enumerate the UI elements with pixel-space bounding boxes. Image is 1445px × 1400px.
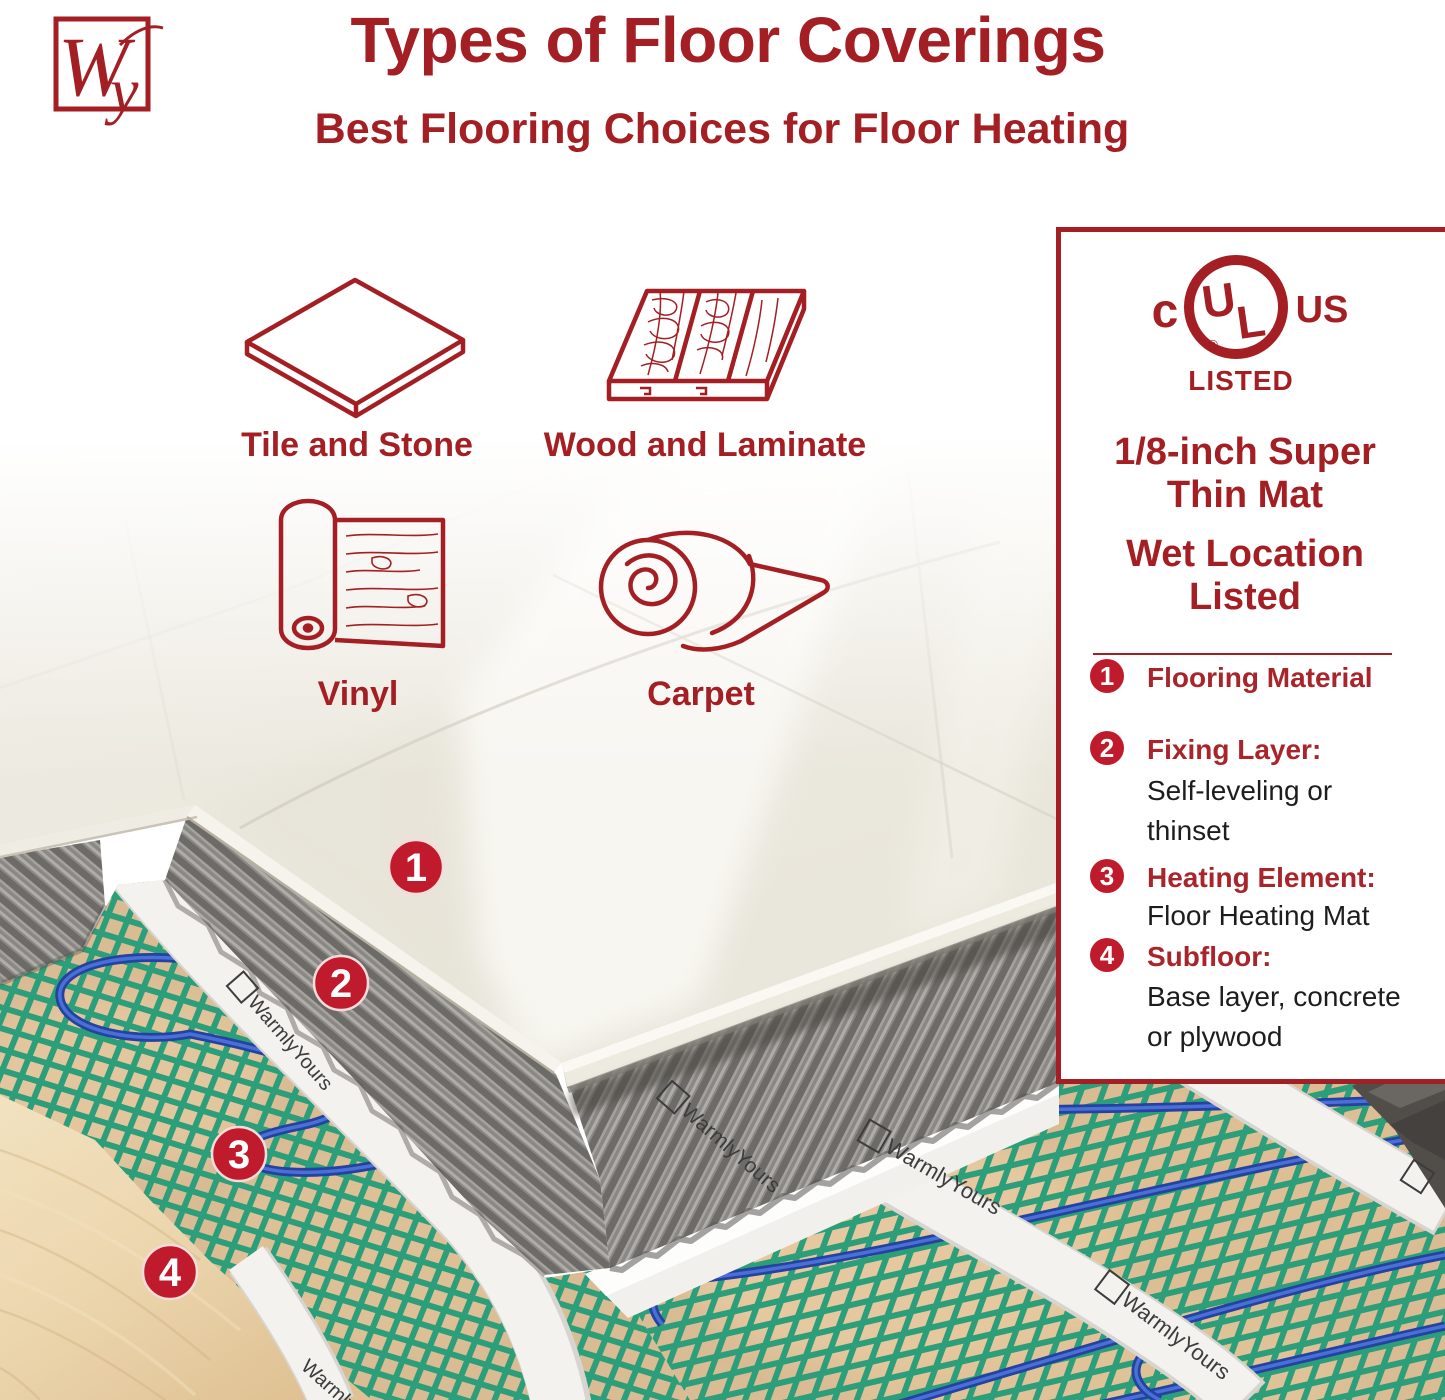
- svg-text:Fixing Layer:: Fixing Layer:: [1147, 734, 1321, 765]
- svg-text:Types of Floor Coverings: Types of Floor Coverings: [351, 4, 1106, 76]
- svg-text:Vinyl: Vinyl: [318, 675, 399, 713]
- svg-text:Tile and Stone: Tile and Stone: [241, 426, 473, 464]
- svg-text:2: 2: [1100, 733, 1114, 763]
- svg-text:US: US: [1296, 289, 1349, 331]
- svg-text:Thin Mat: Thin Mat: [1167, 474, 1324, 516]
- svg-text:thinset: thinset: [1147, 815, 1230, 846]
- svg-text:4: 4: [159, 1251, 182, 1295]
- svg-text:4: 4: [1100, 940, 1115, 970]
- svg-text:Carpet: Carpet: [647, 675, 755, 713]
- svg-text:3: 3: [1100, 861, 1114, 891]
- svg-text:Wood and Laminate: Wood and Laminate: [544, 426, 866, 464]
- svg-text:®: ®: [1208, 337, 1218, 352]
- svg-text:Subfloor:: Subfloor:: [1147, 941, 1271, 972]
- svg-text:Base layer, concrete: Base layer, concrete: [1147, 981, 1401, 1012]
- svg-text:Flooring Material: Flooring Material: [1147, 662, 1373, 693]
- svg-text:1: 1: [405, 846, 427, 890]
- svg-text:Floor Heating Mat: Floor Heating Mat: [1147, 900, 1370, 931]
- svg-text:Self-leveling or: Self-leveling or: [1147, 775, 1332, 806]
- svg-text:1: 1: [1100, 661, 1114, 691]
- svg-text:Wet Location: Wet Location: [1126, 533, 1364, 575]
- svg-text:c: c: [1152, 285, 1179, 338]
- svg-text:LISTED: LISTED: [1188, 365, 1294, 396]
- svg-text:1/8-inch Super: 1/8-inch Super: [1114, 431, 1376, 473]
- svg-text:or plywood: or plywood: [1147, 1021, 1282, 1052]
- svg-text:y: y: [104, 55, 139, 126]
- svg-text:Best Flooring Choices for Floo: Best Flooring Choices for Floor Heating: [315, 105, 1130, 153]
- svg-text:Listed: Listed: [1189, 576, 1301, 618]
- svg-text:3: 3: [228, 1133, 250, 1177]
- svg-text:Heating Element:: Heating Element:: [1147, 862, 1376, 893]
- svg-text:2: 2: [330, 962, 352, 1006]
